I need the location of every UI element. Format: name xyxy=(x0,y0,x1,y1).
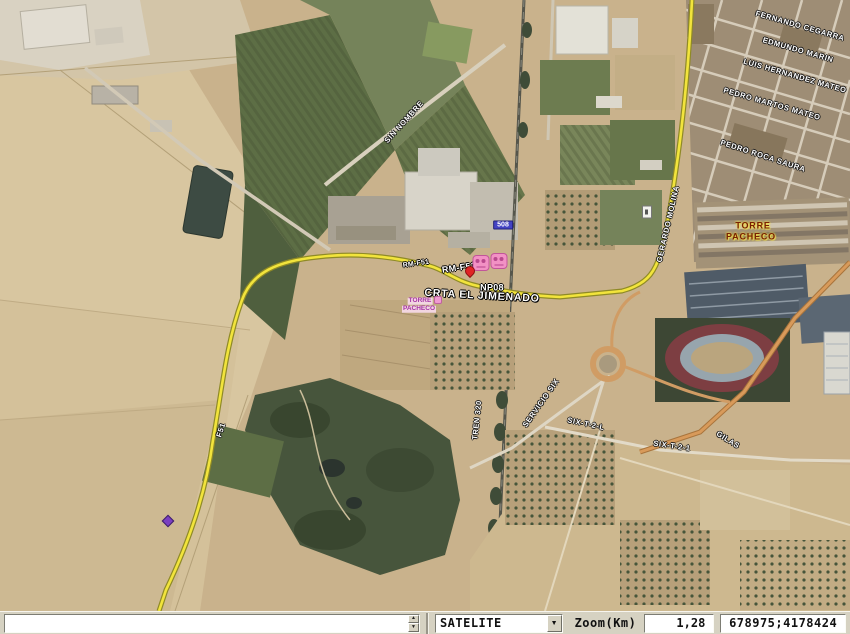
zoom-label: Zoom(Km) xyxy=(569,616,639,630)
map-label-rm-f51-small: RM-F51 xyxy=(402,259,429,270)
search-spinner: ▲ ▼ xyxy=(408,615,419,632)
search-input[interactable] xyxy=(5,615,408,632)
zoom-value-field[interactable]: 1,28 xyxy=(644,614,714,633)
map-label-torre-pacheco-poi-2: PACHECO xyxy=(402,306,436,313)
status-bar: ▲ ▼ SATELITE ▼ Zoom(Km) 1,28 678975;4178… xyxy=(0,611,850,634)
map-label-six-t-2-1: SIX-T-2-1 xyxy=(653,440,691,453)
layer-select[interactable]: SATELITE ▼ xyxy=(435,614,563,633)
map-label-gerardo-molina: GERARDO MOLINA xyxy=(656,185,681,263)
map-label-torre-pacheco-town-2: PACHECO xyxy=(726,233,776,242)
purple-marker-icon[interactable] xyxy=(162,515,175,528)
road-sign-icon xyxy=(642,206,652,219)
search-combobox: ▲ ▼ xyxy=(4,614,420,633)
layer-select-dropdown-button[interactable]: ▼ xyxy=(547,615,562,632)
map-label-pedro-martos-mateo: PEDRO MARTOS MATEO xyxy=(723,87,822,122)
pink-poi-icon[interactable] xyxy=(434,296,442,304)
chevron-down-icon: ▼ xyxy=(551,620,558,627)
map-label-tren-320: TREN 320 xyxy=(471,400,483,440)
map-label-edmundo-marin: EDMUNDO MARIN xyxy=(762,36,834,63)
map-label-km-508: 508 xyxy=(493,221,513,230)
coordinates-display: 678975;4178424 xyxy=(720,614,846,633)
map-label-gilas: GILAS xyxy=(715,430,741,450)
map-label-six-t-2-l: SIX-T-2-L xyxy=(567,416,606,431)
train-icon-2[interactable] xyxy=(491,253,508,269)
map-canvas[interactable]: FERNANDO CEGARRAEDMUNDO MARINLUIS HERNAN… xyxy=(0,0,850,611)
map-label-torre-pacheco-town-1: TORRE xyxy=(735,222,770,231)
layer-select-value: SATELITE xyxy=(436,615,547,632)
map-label-sin-nombre: SIN NOMBRE xyxy=(383,99,425,144)
map-label-f51: F51 xyxy=(215,422,227,438)
spinner-up-icon[interactable]: ▲ xyxy=(408,615,419,624)
map-label-servicio-six: SERVICIO SIX xyxy=(522,377,561,428)
map-label-torre-pacheco-poi-1: TORRE xyxy=(408,298,433,305)
statusbar-divider xyxy=(426,613,429,634)
map-label-pedro-roca-saura: PEDRO ROCA SAURA xyxy=(720,139,807,174)
map-overlay-layer: FERNANDO CEGARRAEDMUNDO MARINLUIS HERNAN… xyxy=(0,0,850,611)
spinner-down-icon[interactable]: ▼ xyxy=(408,623,419,632)
map-application-window: FERNANDO CEGARRAEDMUNDO MARINLUIS HERNAN… xyxy=(0,0,850,634)
